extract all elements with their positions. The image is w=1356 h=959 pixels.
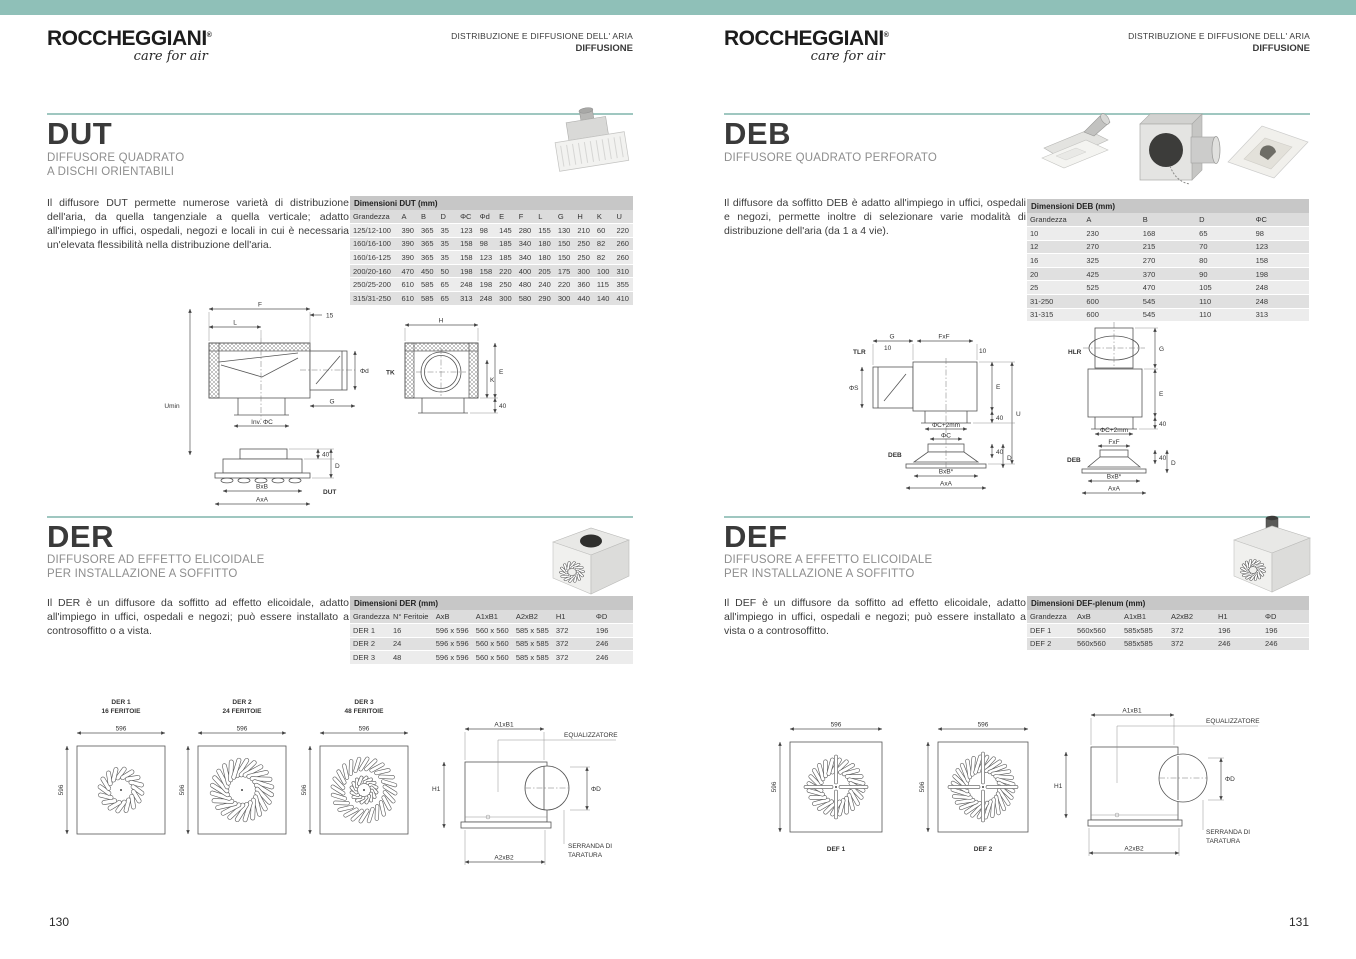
column-header: ΦC [1253, 213, 1309, 227]
breadcrumb-line2: DIFFUSIONE [393, 43, 633, 54]
section-description: Il diffusore da soffitto DEB è adatto al… [724, 196, 1026, 238]
table-row: 1227021570123 [1027, 240, 1309, 254]
column-header: Grandezza [1027, 610, 1074, 624]
column-header: U [613, 210, 633, 224]
der-dimensions-table: Dimensioni DER (mm) GrandezzaN° Feritoie… [350, 596, 633, 665]
registered-mark: ® [884, 32, 889, 39]
column-header: A1xB1 [1121, 610, 1168, 624]
der-variant-1: DER 1 16 FERITOIE 596 596 [58, 699, 165, 834]
dim-label-axa: AxA [1108, 486, 1121, 493]
callout-equalizzatore: EQUALIZZATORE [1206, 718, 1260, 725]
dim-label-fxf: FxF [938, 334, 949, 341]
column-header: D [438, 210, 458, 224]
drawing-label-dut: DUT [323, 489, 336, 496]
column-header: A2xB2 [513, 610, 553, 624]
breadcrumb-line1: DISTRIBUZIONE E DIFFUSIONE DELL' ARIA [393, 31, 633, 41]
dim-label-phic2: ΦC+2mm [1100, 427, 1128, 434]
der-faceplate-drawings: DER 1 16 FERITOIE 596 596 DER 2 24 FERIT… [58, 692, 460, 864]
page-number-right: 131 [1289, 915, 1309, 929]
table-title: Dimensioni DUT (mm) [350, 196, 633, 210]
view-label-tk: TK [386, 370, 395, 377]
dim-label-axa: AxA [940, 481, 953, 488]
column-header: A1xB1 [473, 610, 513, 624]
variant-sublabel: 24 FERITOIE [223, 708, 263, 715]
dim-label-a2b2: A2xB2 [494, 855, 514, 862]
section-description: Il diffusore DUT permette numerose varie… [47, 196, 349, 252]
dim-label-fxf: FxF [1108, 439, 1119, 446]
table-row: 125/12-100390365351239814528015513021060… [350, 224, 633, 238]
dim-label-phid: ΦD [1225, 776, 1235, 783]
table-row: 160/16-100390365351589818534018015025082… [350, 237, 633, 251]
dim-label-a2b2: A2xB2 [1124, 846, 1144, 853]
dim-label-596: 596 [237, 726, 248, 733]
column-header: B [418, 210, 438, 224]
dim-label-h1: H1 [432, 786, 441, 793]
brand-name: ROCCHEGGIANI® [47, 27, 212, 51]
dut-top-section [405, 343, 478, 413]
dim-label-umin: Umin [164, 403, 180, 410]
table-row: DER 116596 x 596560 x 560585 x 585372196 [350, 624, 633, 638]
drawing-label-deb: DEB [888, 452, 902, 459]
der-section-drawing [461, 762, 569, 828]
brand-tagline: care for air [724, 49, 889, 64]
dim-label-a1b1: A1xB1 [1122, 708, 1142, 715]
page-title: DUT [47, 118, 112, 149]
deb-photo-panel [1228, 126, 1308, 178]
catalog-spread: ROCCHEGGIANI® care for air DISTRIBUZIONE… [0, 0, 1356, 959]
table-row: 25525470105248 [1027, 281, 1309, 295]
table-row: DEF 1560x560585x585372196196 [1027, 624, 1309, 638]
brand-name: ROCCHEGGIANI® [724, 27, 889, 51]
view-label-hlr: HLR [1068, 349, 1082, 356]
view-label-tlr: TLR [853, 349, 866, 356]
dim-label-596: 596 [301, 784, 308, 795]
table-row: DER 224596 x 596560 x 560585 x 585372246 [350, 637, 633, 651]
der-variant-3: DER 3 48 FERITOIE 596 596 [301, 699, 408, 834]
der-variant-2: DER 2 24 FERITOIE 596 596 [179, 699, 286, 834]
dim-label-596: 596 [831, 722, 842, 729]
dut-product-image [545, 106, 640, 186]
table-title: Dimensioni DEB (mm) [1027, 199, 1309, 213]
dim-label-40: 40 [499, 403, 507, 410]
page-number-left: 130 [49, 915, 69, 929]
table-row: 160/16-125390365351581231853401801502508… [350, 251, 633, 265]
table-row: 2042537090198 [1027, 267, 1309, 281]
dim-label-phic2: ΦC+2mm [932, 422, 960, 429]
column-header: AxB [1074, 610, 1121, 624]
column-header: Grandezza [350, 610, 390, 624]
def-faceplate-drawings: 596 596 DEF 1 596 596 DEF 2 [770, 700, 1070, 862]
dim-label-40: 40 [996, 415, 1004, 422]
der-product-image [543, 518, 638, 598]
variant-label: DER 3 [354, 699, 374, 706]
deb-photo-plenum [1042, 112, 1111, 168]
section-subtitle: DIFFUSORE AD EFFETTO ELICOIDALE PER INST… [47, 553, 265, 581]
variant-sublabel: 48 FERITOIE [345, 708, 385, 715]
callout-equalizzatore: EQUALIZZATORE [564, 732, 618, 739]
column-header: E [496, 210, 516, 224]
table-row: DER 348596 x 596560 x 560585 x 585372246 [350, 651, 633, 665]
dim-label-40: 40 [1159, 421, 1167, 428]
section-description: Il DER è un diffusore da soffitto ad eff… [47, 596, 349, 638]
drawing-label-deb: DEB [1067, 457, 1081, 464]
column-header: G [555, 210, 575, 224]
dim-label-bxb: BxB* [1107, 474, 1122, 481]
dim-label-phis: ΦS [849, 385, 859, 392]
deb-hlr-drawing [1082, 322, 1146, 473]
column-header: H1 [1215, 610, 1262, 624]
dim-label-h: H [439, 318, 444, 325]
callout-serranda-line1: SERRANDA DI [568, 843, 612, 850]
def-section-drawing [1088, 747, 1207, 826]
brand-tagline: care for air [47, 49, 212, 64]
dim-label-596: 596 [179, 784, 186, 795]
section-description: Il DEF è un diffusore da soffitto ad eff… [724, 596, 1026, 638]
table-row: 200/20-160470450501981582204002051753001… [350, 264, 633, 278]
def-product-image [1224, 512, 1319, 600]
deb-technical-drawing: TLR G FxF 10 10 ΦS E 40 U ΦC+2mm ΦC DEB … [840, 318, 1185, 514]
variant-label: DEF 2 [974, 846, 993, 853]
dim-label-596: 596 [359, 726, 370, 733]
dut-plan-view: 40 D DUT BxB AxA [215, 449, 340, 504]
column-header: B [1140, 213, 1196, 227]
table-title: Dimensioni DEF-plenum (mm) [1027, 596, 1309, 610]
def-variant-2: 596 596 DEF 2 [919, 722, 1028, 854]
breadcrumb-line2: DIFFUSIONE [1070, 43, 1310, 54]
dim-label-d: D [335, 463, 340, 470]
data-table: GrandezzaN° FeritoieAxBA1xB1A2xB2H1ΦDDER… [350, 610, 633, 665]
column-header: ΦC [457, 210, 477, 224]
def-variant-1: 596 596 DEF 1 [771, 722, 882, 854]
logo: ROCCHEGGIANI® care for air [724, 27, 889, 64]
variant-label: DER 2 [232, 699, 252, 706]
column-header: H [574, 210, 594, 224]
variant-label: DEF 1 [827, 846, 846, 853]
column-header: K [594, 210, 614, 224]
page-title: DER [47, 521, 114, 552]
dim-label-596: 596 [978, 722, 989, 729]
table-title: Dimensioni DER (mm) [350, 596, 633, 610]
callout-serranda-line2: TARATURA [568, 852, 603, 859]
dim-label-f: F [258, 302, 262, 309]
column-header: A [1083, 213, 1139, 227]
dim-label-phic: ΦC [941, 433, 951, 440]
table-row: 31-250600545110248 [1027, 294, 1309, 308]
dim-label-596: 596 [771, 781, 778, 792]
dim-label-10: 10 [884, 345, 892, 352]
variant-sublabel: 16 FERITOIE [102, 708, 142, 715]
dim-label-e: E [499, 369, 504, 376]
dut-dimensions-table: Dimensioni DUT (mm) GrandezzaABDΦCΦdEFLG… [350, 196, 633, 306]
der-section-view: A1xB1 EQUALIZZATORE H1 ΦD A2xB2 SERRANDA… [432, 700, 664, 888]
table-row: 1632527080158 [1027, 254, 1309, 268]
dim-label-a1b1: A1xB1 [494, 722, 514, 729]
section-subtitle: DIFFUSORE QUADRATO A DISCHI ORIENTABILI [47, 151, 184, 179]
column-header: A [398, 210, 418, 224]
column-header: Grandezza [350, 210, 398, 224]
dim-label-596: 596 [919, 781, 926, 792]
table-row: DEF 2560x560585x585372246246 [1027, 637, 1309, 651]
data-table: GrandezzaAxBA1xB1A2xB2H1ΦDDEF 1560x56058… [1027, 610, 1309, 651]
column-header: ΦD [1262, 610, 1309, 624]
dim-label-596: 596 [58, 784, 65, 795]
section-divider [724, 516, 1310, 518]
page-title: DEF [724, 521, 788, 552]
dim-label-15: 15 [326, 313, 334, 320]
deb-dimensions-table: Dimensioni DEB (mm) GrandezzaABDΦC102301… [1027, 199, 1309, 322]
column-header: Grandezza [1027, 213, 1083, 227]
table-row: 102301686598 [1027, 227, 1309, 241]
column-header: D [1196, 213, 1252, 227]
deb-photo-box [1140, 114, 1220, 184]
def-dimensions-table: Dimensioni DEF-plenum (mm) GrandezzaAxBA… [1027, 596, 1309, 651]
dim-label-596: 596 [116, 726, 127, 733]
column-header: H1 [553, 610, 593, 624]
dim-label-40: 40 [996, 449, 1004, 456]
page-title: DEB [724, 118, 791, 149]
def-section-view: A1xB1 EQUALIZZATORE H1 ΦD A2xB2 SERRANDA… [1052, 700, 1322, 885]
registered-mark: ® [207, 32, 212, 39]
column-header: ΦD [593, 610, 633, 624]
column-header: N° Feritoie [390, 610, 433, 624]
table-row: 250/25-200610585652481982504802402203601… [350, 278, 633, 292]
dim-label-inv-phic: Inv. ΦC [251, 419, 273, 426]
dim-label-phid: Φd [360, 368, 369, 375]
dim-label-d: D [1171, 460, 1176, 467]
section-subtitle: DIFFUSORE A EFFETTO ELICOIDALE PER INSTA… [724, 553, 932, 581]
header-breadcrumb: DISTRIBUZIONE E DIFFUSIONE DELL' ARIA DI… [393, 31, 633, 54]
column-header: L [535, 210, 555, 224]
dim-label-g: G [329, 399, 334, 406]
dim-label-h1: H1 [1054, 783, 1063, 790]
header-breadcrumb: DISTRIBUZIONE E DIFFUSIONE DELL' ARIA DI… [1070, 31, 1310, 54]
dim-label-d: D [1007, 455, 1012, 462]
dim-label-bxb: BxB* [939, 469, 954, 476]
column-header: Φd [477, 210, 497, 224]
section-subtitle: DIFFUSORE QUADRATO PERFORATO [724, 151, 937, 165]
breadcrumb-line1: DISTRIBUZIONE E DIFFUSIONE DELL' ARIA [1070, 31, 1310, 41]
dim-label-40: 40 [322, 452, 330, 459]
logo: ROCCHEGGIANI® care for air [47, 27, 212, 64]
dim-label-l: L [233, 320, 237, 327]
dim-label-u: U [1016, 411, 1021, 418]
variant-label: DER 1 [111, 699, 131, 706]
dim-label-k: K [490, 377, 495, 384]
dim-label-e: E [996, 384, 1001, 391]
dim-label-10: 10 [979, 348, 987, 355]
dim-label-phid: ΦD [591, 786, 601, 793]
dim-label-axa: AxA [256, 497, 269, 504]
column-header: F [516, 210, 536, 224]
dim-label-g: G [889, 334, 894, 341]
callout-serranda-line1: SERRANDA DI [1206, 829, 1250, 836]
column-header: A2xB2 [1168, 610, 1215, 624]
deb-product-images [1036, 106, 1312, 196]
column-header: AxB [433, 610, 473, 624]
callout-serranda-line2: TARATURA [1206, 838, 1241, 845]
data-table: GrandezzaABDΦC10230168659812270215701231… [1027, 213, 1309, 322]
dut-technical-drawing: F L 15 Umin Φd G Inv. ΦC H TK [150, 298, 660, 510]
data-table: GrandezzaABDΦCΦdEFLGHKU125/12-1003903653… [350, 210, 633, 306]
dim-label-e: E [1159, 391, 1164, 398]
top-accent-band [0, 0, 1356, 15]
dim-label-g: G [1159, 346, 1164, 353]
dut-side-section [209, 338, 355, 420]
dim-label-bxb: BxB [256, 484, 268, 491]
dim-label-40: 40 [1159, 455, 1167, 462]
